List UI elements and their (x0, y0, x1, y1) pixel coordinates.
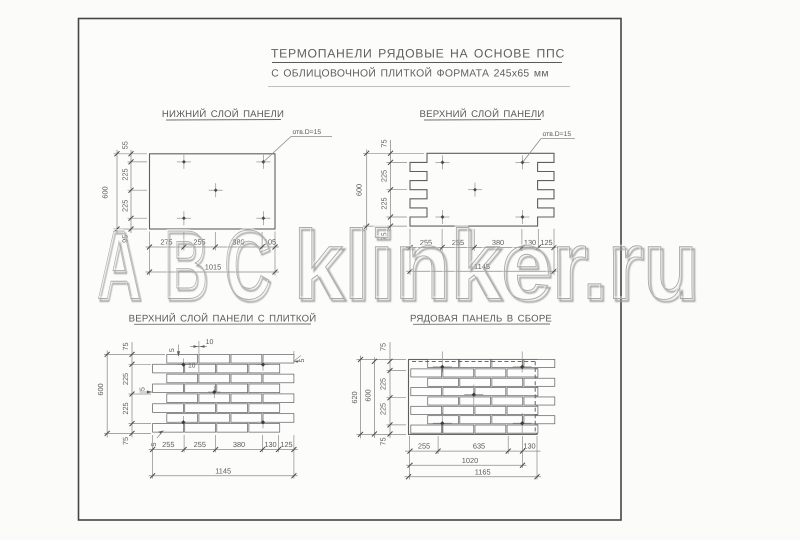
svg-text:1145: 1145 (215, 466, 231, 475)
svg-text:225: 225 (379, 403, 388, 415)
svg-text:75: 75 (121, 437, 130, 445)
svg-text:НИЖНИЙ СЛОЙ ПАНЕЛИ: НИЖНИЙ СЛОЙ ПАНЕЛИ (162, 108, 284, 120)
svg-text:1165: 1165 (475, 467, 491, 476)
svg-text:635: 635 (473, 442, 485, 451)
svg-text:255: 255 (418, 442, 430, 451)
svg-text:B: B (164, 210, 208, 320)
svg-text:отв.D=15: отв.D=15 (293, 129, 322, 136)
svg-text:10: 10 (206, 339, 214, 346)
svg-text:10: 10 (188, 362, 196, 369)
svg-text:С ОБЛИЦОВОЧНОЙ ПЛИТКОЙ ФОРМ: С ОБЛИЦОВОЧНОЙ ПЛИТКОЙ ФОРМАТА 245х65 мм (271, 67, 549, 80)
svg-text:255: 255 (194, 440, 206, 449)
svg-text:A: A (97, 210, 141, 320)
svg-text:225: 225 (120, 168, 129, 180)
svg-text:5: 5 (169, 348, 176, 352)
svg-text:75: 75 (121, 342, 130, 350)
svg-text:C: C (224, 210, 271, 320)
svg-text:ТЕРМОПАНЕЛИ РЯДОВЫЕ НА ОСНО: ТЕРМОПАНЕЛИ РЯДОВЫЕ НА ОСНОВЕ ППС (271, 47, 565, 61)
svg-text:130: 130 (264, 440, 276, 449)
svg-text:75: 75 (379, 437, 388, 445)
svg-text:5: 5 (299, 358, 306, 362)
svg-text:55: 55 (120, 141, 129, 149)
svg-text:255: 255 (162, 440, 174, 449)
svg-text:125: 125 (280, 440, 292, 449)
svg-text:РЯДОВАЯ ПАНЕЛЬ В СБОРЕ: РЯДОВАЯ ПАНЕЛЬ В СБОРЕ (410, 313, 552, 324)
svg-text:225: 225 (379, 378, 388, 390)
svg-text:620: 620 (350, 391, 359, 403)
svg-text:600: 600 (364, 389, 373, 401)
svg-text:отв.D=15: отв.D=15 (543, 131, 572, 138)
svg-text:klinker.ru: klinker.ru (293, 210, 698, 320)
svg-text:600: 600 (101, 186, 110, 198)
svg-text:ВЕРХНИЙ СЛОЙ ПАНЕЛИ: ВЕРХНИЙ СЛОЙ ПАНЕЛИ (420, 108, 545, 120)
svg-text:ВЕРХНИЙ СЛОЙ ПАНЕЛИ С ПЛИТ: ВЕРХНИЙ СЛОЙ ПАНЕЛИ С ПЛИТКОЙ (129, 312, 317, 324)
svg-text:600: 600 (355, 184, 364, 196)
svg-text:1020: 1020 (462, 456, 478, 465)
svg-text:380: 380 (233, 440, 245, 449)
svg-text:75: 75 (379, 139, 388, 147)
svg-text:75: 75 (379, 343, 388, 351)
svg-text:5: 5 (140, 387, 147, 391)
svg-text:600: 600 (96, 383, 105, 395)
svg-text:225: 225 (121, 373, 130, 385)
svg-text:130: 130 (523, 442, 535, 451)
svg-text:225: 225 (379, 170, 388, 182)
svg-text:225: 225 (121, 402, 130, 414)
